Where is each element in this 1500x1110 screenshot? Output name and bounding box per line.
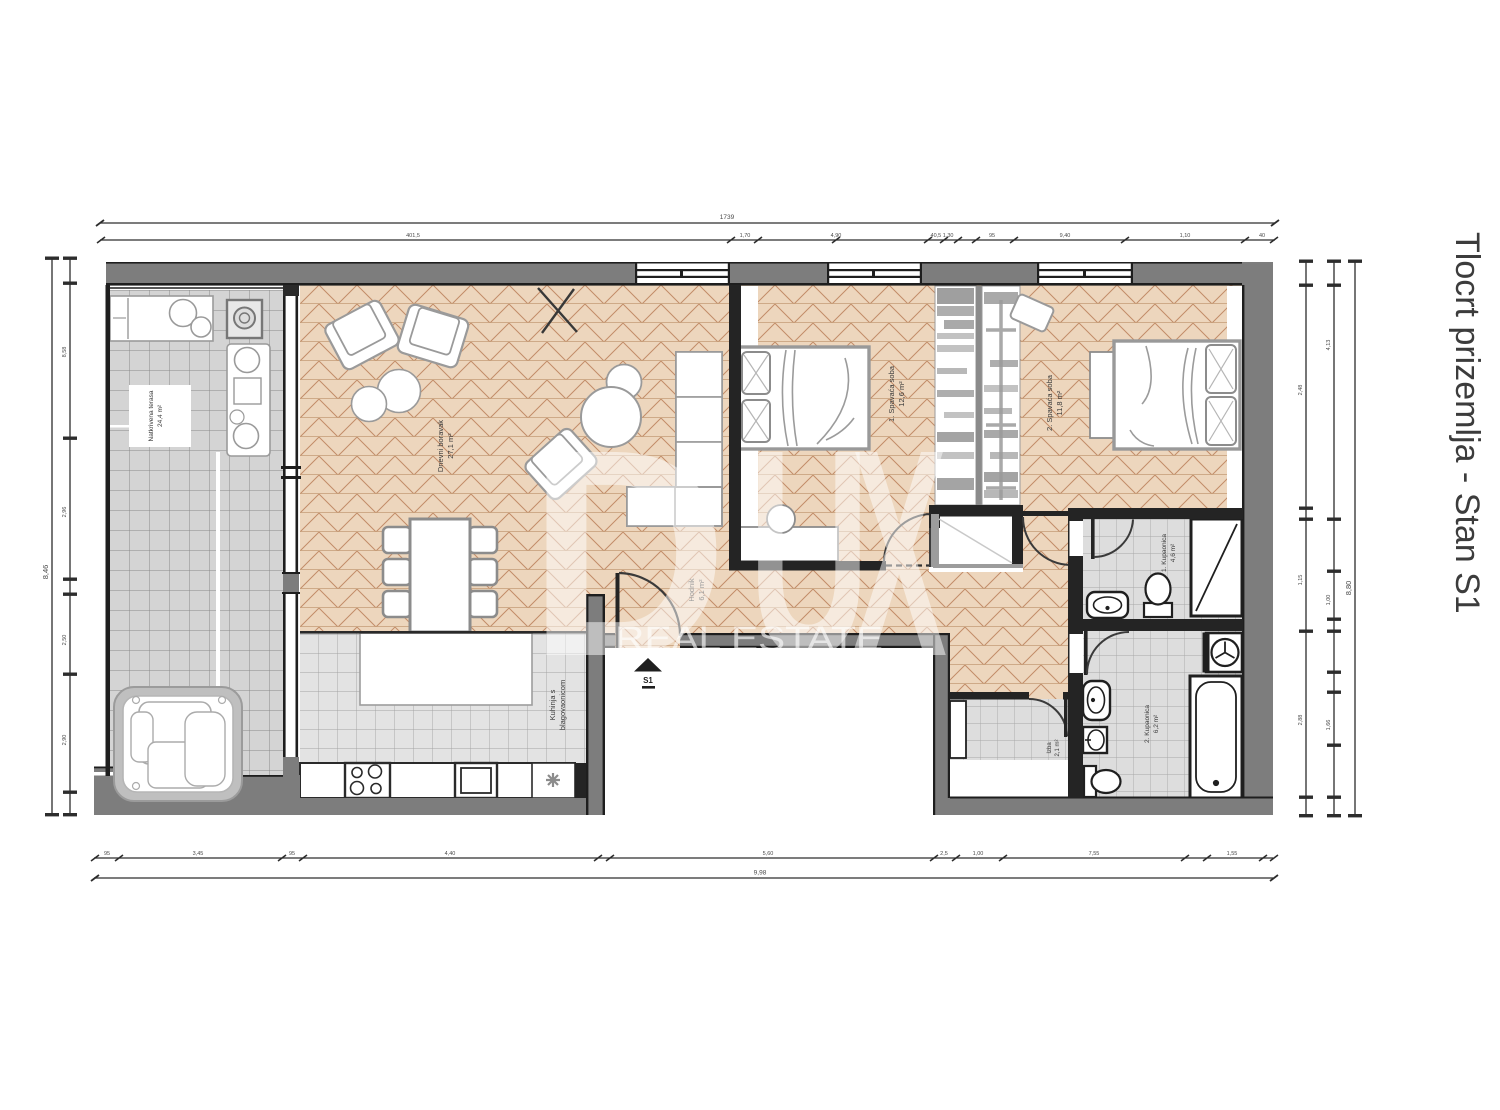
svg-text:Izba: Izba: [1047, 742, 1053, 754]
svg-text:1,55: 1,55: [1227, 851, 1238, 857]
svg-text:1,66: 1,66: [1326, 720, 1332, 731]
svg-text:2,5: 2,5: [940, 851, 948, 857]
svg-text:24,4 m²: 24,4 m²: [157, 404, 164, 427]
svg-text:4,6 m²: 4,6 m²: [1170, 543, 1177, 562]
svg-text:1,15: 1,15: [1298, 575, 1304, 586]
svg-text:2,50: 2,50: [62, 635, 68, 646]
svg-text:7,55: 7,55: [1089, 851, 1100, 857]
svg-text:8,80: 8,80: [1344, 581, 1353, 596]
svg-text:Dnevni boravak: Dnevni boravak: [436, 420, 445, 472]
svg-text:2. Kupaonica: 2. Kupaonica: [1144, 705, 1151, 743]
svg-text:5,60: 5,60: [763, 851, 774, 857]
svg-text:4,40: 4,40: [445, 851, 456, 857]
svg-text:3,45: 3,45: [193, 851, 204, 857]
svg-text:D: D: [528, 388, 728, 718]
svg-text:X: X: [851, 388, 948, 718]
svg-text:2,48: 2,48: [1298, 385, 1304, 396]
svg-text:9,40: 9,40: [1060, 233, 1071, 239]
svg-text:REAL ESTATE: REAL ESTATE: [615, 620, 883, 658]
svg-text:Natkrivena terasa: Natkrivena terasa: [148, 390, 155, 441]
svg-text:1,70: 1,70: [740, 233, 751, 239]
svg-text:2,1 m²: 2,1 m²: [1055, 739, 1061, 756]
svg-text:11,8 m²: 11,8 m²: [1055, 390, 1064, 415]
svg-text:1,00: 1,00: [1326, 595, 1332, 606]
svg-text:Tlocrt prizemlja - Stan S1: Tlocrt prizemlja - Stan S1: [1448, 232, 1486, 614]
svg-text:401,5: 401,5: [406, 233, 420, 239]
svg-text:40: 40: [1259, 233, 1265, 239]
svg-text:2,88: 2,88: [1298, 715, 1304, 726]
svg-text:2,96: 2,96: [62, 507, 68, 518]
svg-text:6,2 m²: 6,2 m²: [1153, 714, 1160, 733]
svg-text:8,46: 8,46: [41, 565, 50, 580]
svg-text:27,1 m²: 27,1 m²: [446, 433, 455, 459]
svg-text:4,13: 4,13: [1326, 340, 1332, 351]
svg-text:2. Spavaća soba: 2. Spavaća soba: [1045, 374, 1054, 431]
svg-text:2,90: 2,90: [62, 735, 68, 746]
svg-text:8,58: 8,58: [62, 347, 68, 358]
svg-text:1739: 1739: [720, 214, 735, 221]
svg-text:1,10: 1,10: [1180, 233, 1191, 239]
svg-text:1. Kupaonica: 1. Kupaonica: [1161, 534, 1168, 572]
svg-text:4,90: 4,90: [831, 233, 842, 239]
svg-text:95: 95: [989, 233, 995, 239]
svg-text:9,98: 9,98: [754, 870, 767, 877]
svg-text:95: 95: [289, 851, 295, 857]
svg-text:40,5 1,30: 40,5 1,30: [931, 233, 954, 239]
svg-text:95: 95: [104, 851, 110, 857]
svg-text:1,00: 1,00: [973, 851, 984, 857]
